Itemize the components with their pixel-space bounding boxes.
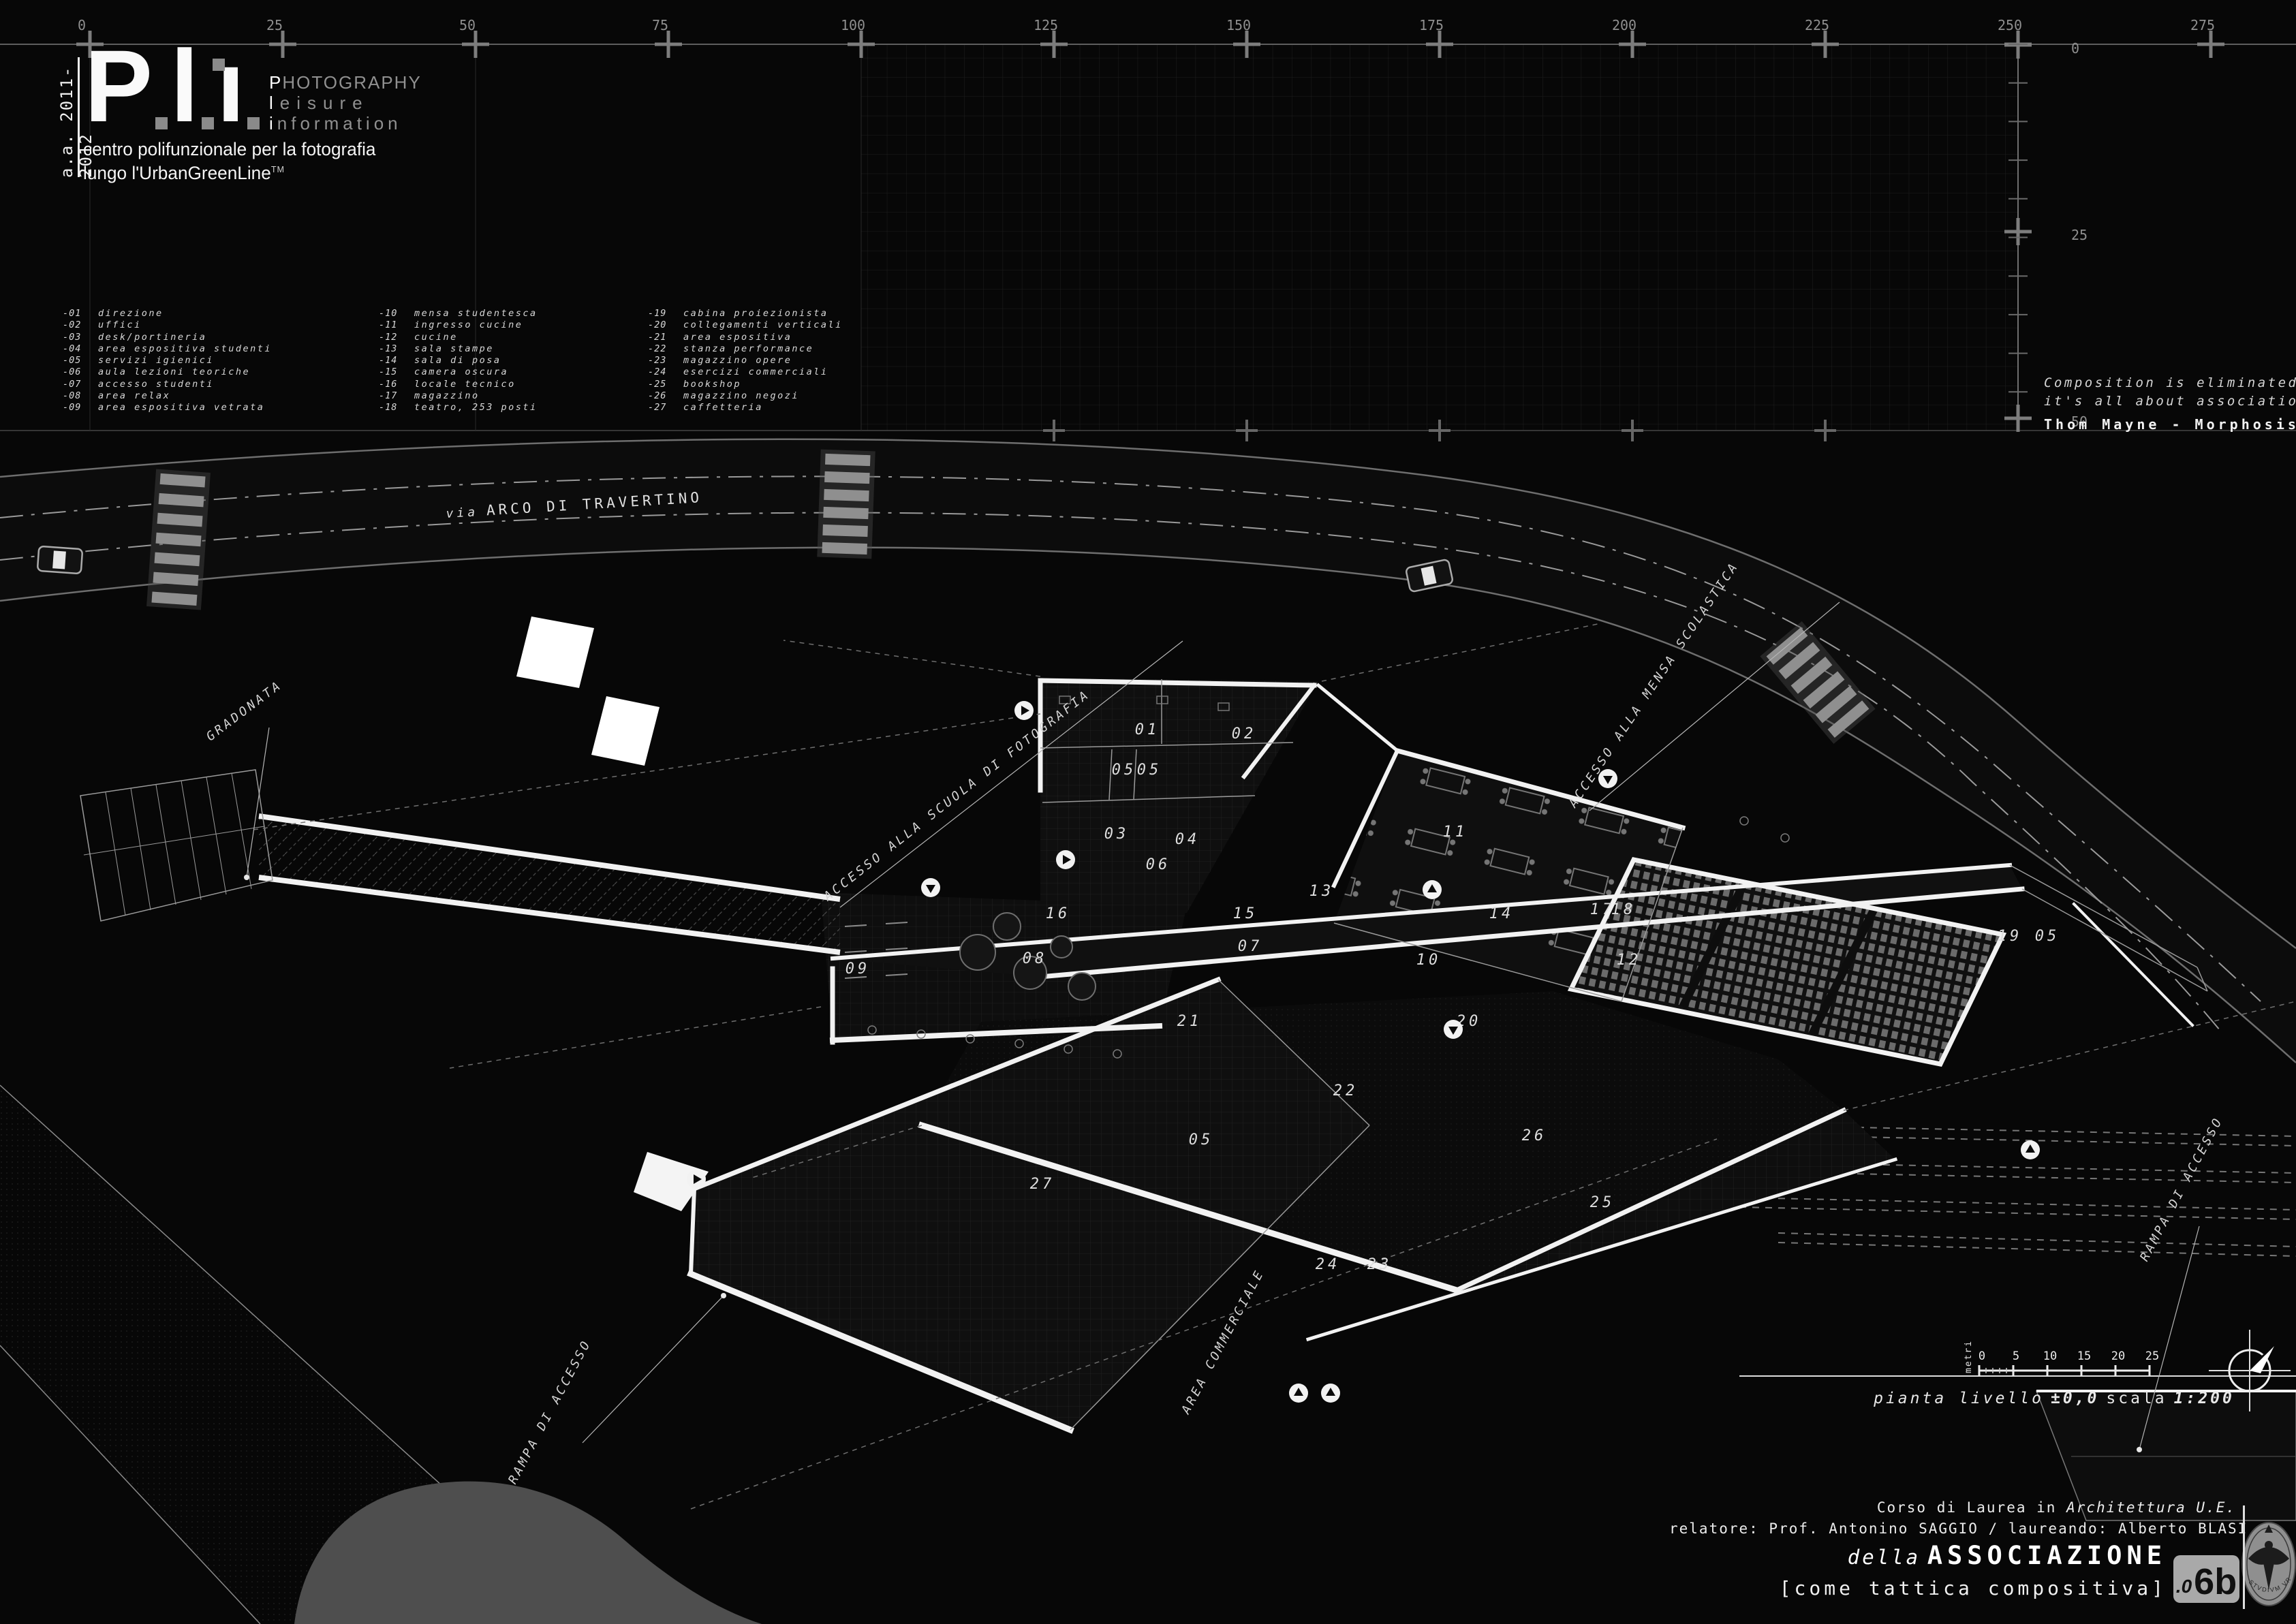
legend-item-label: locale tecnico (414, 379, 516, 390)
legend-item-number: -27 (648, 402, 683, 413)
legend-item-label: area espositiva vetrata (98, 402, 264, 413)
titleblock-divider (2243, 1505, 2245, 1609)
ruler-tick-label: 125 (1034, 17, 1058, 33)
quote-attribution: Thom Mayne - Morphosis (2044, 416, 2276, 434)
legend-item-number: -10 (379, 308, 414, 319)
legend-item-number: -02 (63, 319, 98, 331)
legend-item-label: cabina proiezionista (683, 308, 828, 319)
legend-item: -15camera oscura (379, 366, 538, 378)
entrance-arrow-icon (1014, 701, 1034, 720)
legend-item-number: -25 (648, 379, 683, 390)
logo-acronym: PHOTOGRAPHY leisure information (269, 72, 422, 134)
crosswalk-bar (825, 454, 871, 466)
crosswalk-bar (822, 542, 867, 555)
entrance-arrow-icon (921, 878, 940, 897)
logo-pli: Plı (84, 38, 260, 134)
legend-item: -24esercizi commerciali (648, 366, 843, 378)
legend-item-label: servizi igienici (98, 355, 214, 366)
legend-item-number: -07 (63, 379, 98, 390)
legend-item-number: -18 (379, 402, 414, 413)
legend-item: -01direzione (63, 308, 272, 319)
plan-label: RAMPA DI ACCESSO (506, 1337, 594, 1486)
legend-item-label: sala stampe (414, 343, 494, 354)
room-number: 09 (846, 961, 871, 978)
people-line: relatore: Prof. Antonino SAGGIO / laurea… (1669, 1518, 2236, 1540)
crosswalk (146, 469, 211, 610)
legend-item-number: -19 (648, 308, 683, 319)
entrance-arrow-icon (1321, 1384, 1340, 1403)
scale-tick-label: 5 (2013, 1349, 2019, 1363)
legend-item: -06aula lezioni teoriche (63, 366, 272, 378)
legend-item-label: caffetteria (683, 402, 763, 413)
legend-column-3: -19cabina proiezionista-20collegamenti v… (648, 308, 843, 414)
legend-item: -22stanza performance (648, 343, 843, 355)
legend-item-number: -05 (63, 355, 98, 366)
legend-item: -04area espositiva studenti (63, 343, 272, 355)
legend-item-number: -12 (379, 332, 414, 343)
legend-item-label: bookshop (683, 379, 741, 390)
entry-ramp (80, 770, 840, 952)
legend-item-number: -01 (63, 308, 98, 319)
ruler-tick-label: 250 (1998, 17, 2022, 33)
quote-line: it's all about association (2044, 392, 2276, 411)
room-number: 23 (1367, 1256, 1393, 1273)
legend-item-number: -22 (648, 343, 683, 355)
legend-item: -02uffici (63, 319, 272, 331)
room-number: 05 (1137, 762, 1162, 779)
legend-item-label: sala di posa (414, 355, 501, 366)
legend-column-1: -01direzione-02uffici-03desk/portineria-… (63, 308, 272, 414)
entrance-arrow-icon (1056, 850, 1075, 869)
titleblock-course: Corso di Laurea in Architettura U.E. rel… (1669, 1497, 2236, 1540)
legend-item: -07accesso studenti (63, 379, 272, 390)
legend-item-label: teatro, 253 posti (414, 402, 538, 413)
ruler-tick (655, 31, 682, 58)
skylight-highlight (591, 696, 660, 766)
legend-item-number: -06 (63, 366, 98, 378)
legend-item: -12cucine (379, 332, 538, 343)
room-number: 01 (1135, 721, 1160, 738)
legend-item: -18teatro, 253 posti (379, 402, 538, 413)
grid-area (861, 44, 2018, 431)
legend-item-number: -23 (648, 355, 683, 366)
logo-square-icon (155, 117, 168, 129)
room-number: 27 (1030, 1176, 1055, 1193)
room-number: 22 (1333, 1082, 1359, 1099)
room-number: 19 (1998, 928, 2023, 945)
legend-item: -25bookshop (648, 379, 843, 390)
crosswalk-bar (824, 489, 869, 501)
entrance-arrow-icon (1444, 1020, 1463, 1039)
room-number: 05 (1112, 762, 1137, 779)
room-number: 25 (1590, 1194, 1615, 1211)
legend-item-label: esercizi commerciali (683, 366, 828, 377)
legend-item: -11ingresso cucine (379, 319, 538, 331)
entrance-arrow-icon (1598, 769, 1617, 788)
legend-item-label: magazzino negozi (683, 390, 799, 401)
scale-bar: metri 0510152025 pianta livello±0,0scala… (1873, 1330, 2291, 1411)
legend-item-number: -17 (379, 390, 414, 402)
legend-item-label: desk/portineria (98, 332, 206, 343)
legend-item-label: area espositiva (683, 332, 792, 343)
scale-tick-label: 20 (2111, 1349, 2125, 1363)
car-windshield (52, 550, 66, 569)
quote-line: Composition is eliminated, (2044, 374, 2276, 392)
legend-item: -13sala stampe (379, 343, 538, 355)
legend-item: -16locale tecnico (379, 379, 538, 390)
header-divider (78, 57, 80, 177)
crosswalk (817, 450, 875, 559)
legend-item-label: cucine (414, 332, 458, 343)
skylight-highlight (516, 616, 594, 688)
room-number: 18 (1611, 901, 1636, 918)
legend-item: -23magazzino opere (648, 355, 843, 366)
legend-item-number: -09 (63, 402, 98, 413)
legend-item-number: -16 (379, 379, 414, 390)
room-number: 16 (1046, 905, 1071, 922)
legend-item-label: direzione (98, 308, 164, 319)
legend-item-label: stanza performance (683, 343, 813, 354)
quote-block: Composition is eliminated, it's all abou… (2044, 374, 2276, 434)
legend-item: -20collegamenti verticali (648, 319, 843, 331)
ruler-tick-label: 25 (266, 17, 283, 33)
legend-item-number: -20 (648, 319, 683, 331)
legend-item-number: -24 (648, 366, 683, 378)
logo-letter: l (170, 38, 199, 134)
crosswalk-bar (822, 525, 868, 537)
legend-item-label: aula lezioni teoriche (98, 366, 250, 377)
legend-item-label: area espositiva studenti (98, 343, 272, 354)
entrance-arrow-icon (1423, 880, 1442, 899)
room-number: 13 (1309, 883, 1335, 900)
ruler-tick-label: 225 (1805, 17, 1829, 33)
logo-letter: ı (217, 38, 245, 134)
ruler-tick-label: 200 (1612, 17, 1636, 33)
legend-item: -09area espositiva vetrata (63, 402, 272, 413)
course-line: Corso di Laurea in Architettura U.E. (1669, 1497, 2236, 1518)
subtitle-line: centro polifunzionale per la fotografia (83, 140, 376, 159)
legend-item-label: accesso studenti (98, 379, 214, 390)
legend-item-number: -14 (379, 355, 414, 366)
room-number: 15 (1233, 905, 1258, 922)
legend-item-label: camera oscura (414, 366, 508, 377)
legend-item-number: -21 (648, 332, 683, 343)
legend-item: -26magazzino negozi (648, 390, 843, 402)
legend-item-label: magazzino opere (683, 355, 792, 366)
ruler-tick (462, 31, 489, 58)
legend-item-label: magazzino (414, 390, 480, 401)
ruler-tick-label: 175 (1419, 17, 1444, 33)
legend-item-number: -11 (379, 319, 414, 331)
room-number: 02 (1232, 725, 1257, 743)
car-icon (37, 546, 82, 574)
legend-item: -03desk/portineria (63, 332, 272, 343)
legend-item: -05servizi igienici (63, 355, 272, 366)
ruler-tick-label: 0 (2071, 40, 2079, 57)
legend-item-label: ingresso cucine (414, 319, 523, 330)
legend-item-number: -03 (63, 332, 98, 343)
entrance-arrow-icon (2021, 1140, 2040, 1159)
plan-drawing: 0255075100125150175200225250275 02550 vi… (0, 0, 2296, 1624)
legend-item: -14sala di posa (379, 355, 538, 366)
legend-item: -10mensa studentesca (379, 308, 538, 319)
logo-letter: P (84, 38, 153, 134)
ruler-tick-label: 75 (652, 17, 668, 33)
sheet-number-badge: .06b (2173, 1555, 2239, 1603)
subtitle-line: lungo l'UrbanGreenLineTM (83, 159, 376, 183)
crosswalk-bar (824, 471, 870, 484)
board-subtitle: [come tattica compositiva] (1669, 1577, 2167, 1599)
legend-item-label: uffici (98, 319, 142, 330)
legend-item-label: collegamenti verticali (683, 319, 843, 330)
entrance-arrow-icon (687, 1170, 706, 1189)
project-subtitle: centro polifunzionale per la fotografia … (83, 140, 376, 183)
legend-column-2: -10mensa studentesca-11ingresso cucine-1… (379, 308, 538, 414)
room-number: 04 (1175, 831, 1200, 848)
room-number: 10 (1416, 952, 1442, 969)
acronym-line: information (269, 113, 422, 134)
room-number: 06 (1146, 856, 1171, 873)
ruler-tick-label: 25 (2071, 227, 2088, 243)
room-number: 24 (1316, 1256, 1341, 1273)
ruler-tick-label: 275 (2190, 17, 2215, 33)
room-number: 26 (1522, 1127, 1547, 1144)
ruler-tick-label: 50 (459, 17, 476, 33)
scale-tick-label: 25 (2145, 1349, 2159, 1363)
logo-square-icon (202, 117, 214, 129)
room-number: 08 (1023, 950, 1048, 967)
legend-item-number: -04 (63, 343, 98, 355)
room-number: 12 (1617, 952, 1642, 969)
crosswalk-bar (823, 507, 869, 519)
logo-square-icon (213, 59, 225, 71)
scale-unit: metri (1964, 1340, 1974, 1373)
plan-caption: pianta livello±0,0scala1:200 (1873, 1390, 2235, 1407)
legend-item-label: area relax (98, 390, 170, 401)
legend-item: -08area relax (63, 390, 272, 402)
scale-tick-label: 15 (2077, 1349, 2091, 1363)
legend-item-label: mensa studentesca (414, 308, 538, 319)
entrance-arrow-icon (1289, 1384, 1308, 1403)
legend-item-number: -15 (379, 366, 414, 378)
legend-item-number: -08 (63, 390, 98, 402)
legend-item: -19cabina proiezionista (648, 308, 843, 319)
legend-item-number: -26 (648, 390, 683, 402)
room-number: 05 (1189, 1131, 1214, 1149)
ruler-tick-label: 100 (841, 17, 865, 33)
legend-item: -17magazzino (379, 390, 538, 402)
room-number: 07 (1238, 938, 1263, 955)
acronym-line: PHOTOGRAPHY (269, 72, 422, 93)
room-number: 11 (1443, 824, 1468, 841)
ruler-tick-label: 150 (1226, 17, 1251, 33)
logo-square-icon (247, 117, 260, 129)
acronym-line: leisure (269, 93, 422, 113)
legend-item-number: -13 (379, 343, 414, 355)
titleblock-title: della ASSOCIAZIONE [come tattica composi… (1669, 1541, 2167, 1599)
room-number: 03 (1104, 826, 1130, 843)
scale-tick-label: 0 (1979, 1349, 1985, 1363)
board-title: della ASSOCIAZIONE (1669, 1541, 2167, 1570)
building-wings (691, 678, 2022, 1430)
plan-label: GRADONATA (204, 678, 285, 744)
legend-item: -21area espositiva (648, 332, 843, 343)
presentation-board: { "page": {"bg": "#070707", "accent_whit… (0, 0, 2296, 1624)
room-number: 21 (1177, 1013, 1203, 1030)
room-number: 05 (2035, 928, 2060, 945)
plan-label: RAMPA DI ACCESSO (2137, 1114, 2226, 1264)
legend-item: -27caffetteria (648, 402, 843, 413)
room-number: 14 (1489, 905, 1515, 922)
scale-tick-label: 10 (2043, 1349, 2057, 1363)
ruler-tick (2197, 31, 2224, 58)
ruler-tick (269, 31, 296, 58)
